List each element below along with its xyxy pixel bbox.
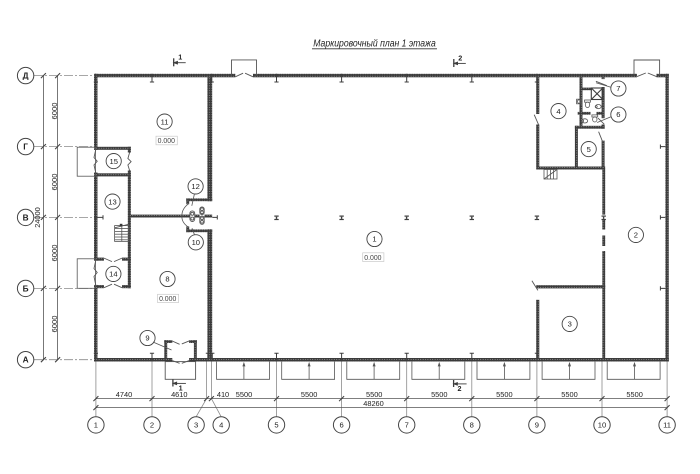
svg-text:5: 5	[274, 421, 278, 430]
svg-text:1: 1	[179, 384, 183, 393]
svg-text:А: А	[23, 355, 29, 365]
svg-text:Д: Д	[23, 71, 29, 81]
svg-text:3: 3	[194, 421, 198, 430]
svg-text:48260: 48260	[363, 399, 384, 408]
svg-text:410: 410	[217, 390, 229, 399]
svg-text:1: 1	[178, 53, 182, 62]
svg-text:10: 10	[192, 238, 200, 247]
svg-text:2: 2	[634, 231, 638, 240]
svg-text:7: 7	[616, 84, 620, 93]
svg-text:4: 4	[556, 107, 560, 116]
svg-text:0.000: 0.000	[159, 296, 176, 303]
svg-text:5500: 5500	[236, 390, 252, 399]
svg-text:7: 7	[405, 421, 409, 430]
svg-text:6000: 6000	[50, 316, 59, 333]
svg-text:3: 3	[568, 320, 572, 329]
svg-text:6: 6	[616, 110, 620, 119]
svg-text:5500: 5500	[431, 390, 447, 399]
svg-text:11: 11	[663, 421, 671, 430]
svg-text:5: 5	[587, 145, 591, 154]
svg-text:1: 1	[94, 421, 98, 430]
svg-text:6000: 6000	[50, 103, 59, 120]
svg-text:5500: 5500	[626, 390, 642, 399]
svg-text:9: 9	[535, 421, 539, 430]
svg-text:2: 2	[458, 53, 462, 62]
svg-text:0.000: 0.000	[364, 255, 381, 262]
svg-text:В: В	[23, 212, 29, 222]
svg-text:5500: 5500	[561, 390, 577, 399]
svg-text:6: 6	[339, 421, 343, 430]
svg-text:11: 11	[161, 117, 169, 126]
svg-text:4: 4	[219, 421, 223, 430]
svg-text:12: 12	[191, 182, 199, 191]
svg-text:1: 1	[372, 235, 376, 244]
svg-text:15: 15	[109, 157, 117, 166]
svg-text:5500: 5500	[366, 390, 382, 399]
svg-text:8: 8	[165, 275, 169, 284]
svg-text:5500: 5500	[301, 390, 317, 399]
svg-text:9: 9	[145, 334, 149, 343]
svg-text:Б: Б	[23, 283, 29, 293]
svg-text:5500: 5500	[496, 390, 512, 399]
svg-text:8: 8	[470, 421, 474, 430]
svg-text:2: 2	[458, 384, 462, 393]
svg-text:Г: Г	[23, 142, 28, 152]
svg-text:Маркировочный план 1 этажа: Маркировочный план 1 этажа	[313, 38, 436, 49]
svg-text:4740: 4740	[116, 390, 132, 399]
svg-text:10: 10	[598, 421, 606, 430]
svg-text:6000: 6000	[50, 245, 59, 262]
svg-text:6000: 6000	[50, 174, 59, 191]
svg-text:2: 2	[150, 421, 154, 430]
svg-text:0.000: 0.000	[158, 138, 175, 145]
svg-text:13: 13	[108, 197, 116, 206]
svg-text:14: 14	[109, 270, 117, 279]
